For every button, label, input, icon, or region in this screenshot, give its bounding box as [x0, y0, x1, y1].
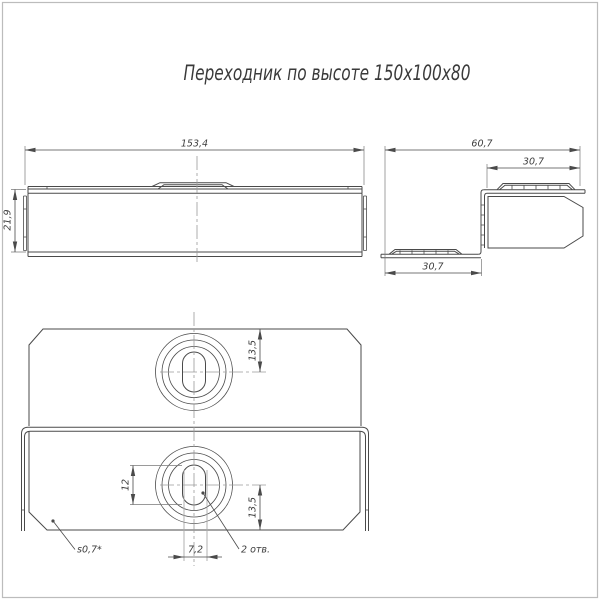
side-view-part: [381, 184, 585, 258]
plan-dim-lower-offset: 13,5: [248, 485, 263, 530]
side-lower-flange: [381, 250, 481, 258]
plan-upper-plate: [29, 329, 361, 426]
front-view: 153,4 21,9: [3, 139, 367, 265]
front-dim-width-text: 153,4: [181, 139, 208, 150]
plan-dim-upper-offset: 13,5: [248, 329, 263, 372]
front-body: [28, 193, 362, 256]
front-left-tab: [24, 196, 27, 251]
plan-holes-note-text: 2 отв.: [241, 545, 270, 556]
plan-view: 13,5 12 13,5 7,2 2 отв. s0,7*: [22, 312, 369, 566]
plan-dim-upper-offset-text: 13,5: [248, 340, 259, 361]
front-center-boss: [152, 183, 234, 189]
front-dim-height-text: 21,9: [3, 209, 14, 230]
side-upper-flange-ticks: [512, 185, 560, 189]
side-dim-total-ext: [385, 146, 580, 276]
front-view-part: [24, 156, 367, 264]
plan-fold-outer: [22, 427, 369, 531]
side-upper-flange: [484, 184, 585, 194]
technical-drawing: Переходник по высоте 150х100х80 153,4: [0, 0, 600, 600]
plan-view-part: [22, 312, 369, 566]
plan-thickness-note-text: s0,7*: [77, 545, 102, 556]
plan-dim-slot-width: 7,2: [168, 470, 222, 561]
plan-dim-slot-length-ext: [130, 466, 182, 505]
side-dim-total: 60,7: [385, 139, 580, 277]
plan-dim-slot-width-text: 7,2: [188, 545, 203, 556]
side-dim-lower: 30,7: [385, 259, 482, 276]
front-right-tab: [364, 196, 367, 251]
side-dim-upper-text: 30,7: [523, 157, 544, 168]
drawing-title: Переходник по высоте 150х100х80: [184, 61, 471, 85]
plan-leader-thickness-line: [53, 521, 75, 550]
front-dim-height: 21,9: [3, 190, 27, 253]
side-view: 60,7 30,7 30,7: [381, 139, 585, 277]
side-web-ticks: [481, 205, 485, 245]
plan-dim-lower-offset-text: 13,5: [248, 497, 259, 518]
front-dim-width-ext: [25, 146, 364, 185]
sheet-border: [3, 3, 598, 598]
front-top-flange: [28, 187, 362, 194]
side-dim-total-text: 60,7: [471, 139, 492, 150]
side-dim-lower-text: 30,7: [422, 262, 443, 273]
plan-leader-thickness-note: s0,7*: [51, 519, 102, 555]
side-body: [488, 197, 583, 249]
front-dim-width: 153,4: [25, 139, 364, 186]
drawing-sheet: Переходник по высоте 150х100х80 153,4: [0, 0, 600, 600]
plan-dim-slot-length-text: 12: [121, 479, 132, 491]
